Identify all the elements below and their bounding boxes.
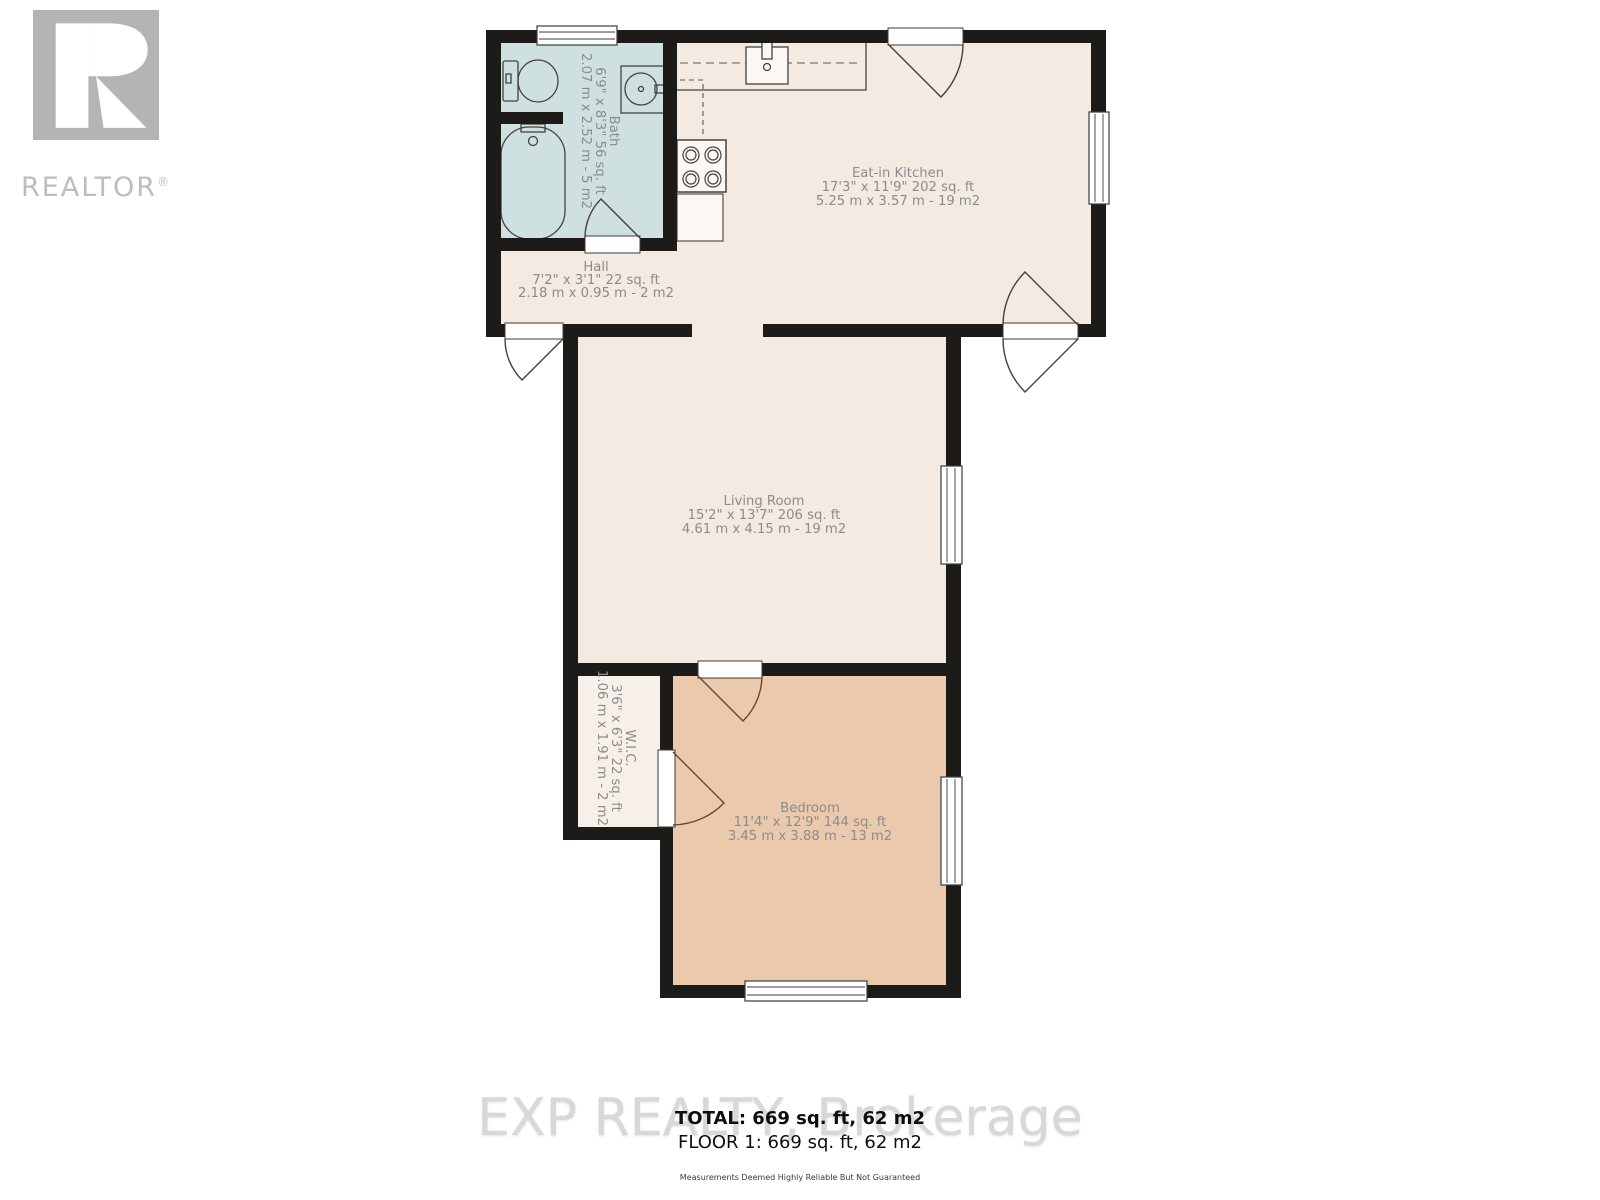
living-metric: 4.61 m x 4.15 m - 19 m2 bbox=[682, 522, 846, 537]
kitchen-cabinet bbox=[677, 194, 723, 241]
floorplan-page: REALTOR® bbox=[0, 0, 1600, 1200]
floor-plan: Eat-in Kitchen 17'3" x 11'9" 202 sq. ft … bbox=[0, 0, 1600, 1200]
wic-imperial: 3'6" x 6'3" 22 sq. ft bbox=[608, 684, 623, 812]
bedroom-metric: 3.45 m x 3.88 m - 13 m2 bbox=[728, 829, 892, 844]
wall bbox=[486, 238, 677, 251]
area-summary: TOTAL: 669 sq. ft, 62 m2 FLOOR 1: 669 sq… bbox=[400, 1108, 1200, 1182]
hall-side-door-arc bbox=[505, 339, 563, 380]
bath-metric: 2.07 m x 2.52 m - 5 m2 bbox=[578, 53, 593, 209]
total-area-text: TOTAL: 669 sq. ft, 62 m2 bbox=[400, 1108, 1200, 1129]
kitchen-name: Eat-in Kitchen bbox=[852, 166, 944, 181]
disclaimer-text: Measurements Deemed Highly Reliable But … bbox=[400, 1173, 1200, 1182]
living-room-window bbox=[941, 466, 962, 564]
kitchen-imperial: 17'3" x 11'9" 202 sq. ft bbox=[822, 180, 975, 195]
bath-window bbox=[537, 26, 617, 45]
wall bbox=[660, 676, 673, 998]
kitchen-metric: 5.25 m x 3.57 m - 19 m2 bbox=[816, 194, 980, 209]
floor1-area-text: FLOOR 1: 669 sq. ft, 62 m2 bbox=[400, 1132, 1200, 1153]
bedroom-name: Bedroom bbox=[780, 801, 840, 816]
hall-side-door-leaf bbox=[505, 323, 563, 339]
kitchen-exterior-door-leaf bbox=[1003, 323, 1078, 339]
wall bbox=[563, 337, 578, 840]
wall bbox=[486, 30, 501, 337]
bath-door-leaf bbox=[585, 236, 640, 253]
wall bbox=[663, 43, 677, 251]
bedroom-side-window bbox=[941, 777, 962, 885]
bedroom-bottom-window bbox=[745, 981, 867, 1001]
living-name: Living Room bbox=[724, 494, 805, 509]
wic-name: W.I.C. bbox=[622, 729, 637, 766]
hall-metric: 2.18 m x 0.95 m - 2 m2 bbox=[518, 286, 674, 301]
wall bbox=[563, 827, 673, 840]
bath-name: Bath bbox=[606, 116, 621, 147]
kitchen-exterior-door-arc-out bbox=[1003, 339, 1078, 392]
wall bbox=[946, 324, 961, 998]
bath-imperial: 6'9" x 8'3" 56 sq. ft bbox=[592, 67, 607, 195]
living-imperial: 15'2" x 13'7" 206 sq. ft bbox=[688, 508, 841, 523]
bedroom-door-leaf bbox=[698, 661, 762, 678]
bedroom-imperial: 11'4" x 12'9" 144 sq. ft bbox=[734, 815, 887, 830]
wic-door-leaf bbox=[658, 750, 675, 827]
wic-metric: 1.06 m x 1.91 m - 2 m2 bbox=[594, 670, 609, 826]
kitchen-window bbox=[1089, 112, 1109, 204]
entry-door-leaf bbox=[888, 28, 963, 45]
wall bbox=[501, 112, 563, 124]
hall-living-passage bbox=[692, 324, 763, 337]
